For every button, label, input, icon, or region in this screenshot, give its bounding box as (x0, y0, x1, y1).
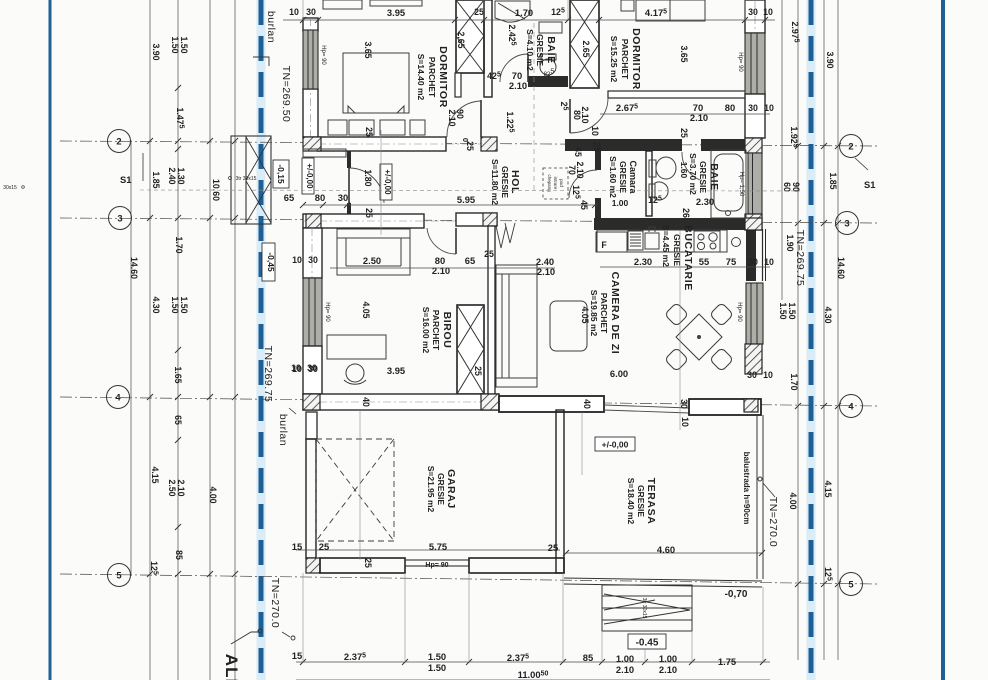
svg-text:1.50: 1.50 (428, 651, 446, 662)
svg-text:30: 30 (306, 7, 316, 17)
svg-text:4.30: 4.30 (151, 296, 161, 313)
svg-text:1.925: 1.925 (789, 126, 799, 147)
svg-text:S=18.40 m2: S=18.40 m2 (626, 478, 636, 525)
svg-text:6.00: 6.00 (610, 368, 628, 379)
svg-text:25: 25 (548, 542, 558, 553)
svg-text:1.50: 1.50 (179, 296, 189, 313)
svg-text:1.00: 1.00 (616, 653, 634, 664)
svg-text:2.10: 2.10 (176, 479, 186, 496)
svg-text:80: 80 (315, 192, 325, 203)
svg-text:3.95: 3.95 (387, 365, 405, 376)
svg-text:10: 10 (763, 370, 773, 380)
svg-text:Hp= 90: Hp= 90 (736, 302, 742, 322)
svg-text:S=1.60 m2: S=1.60 m2 (608, 156, 618, 198)
svg-text:15: 15 (292, 650, 302, 661)
svg-text:30x15: 30x15 (3, 185, 17, 191)
svg-text:1.65: 1.65 (173, 366, 183, 383)
svg-text:5.95: 5.95 (457, 194, 475, 205)
svg-text:S=21.95 m2: S=21.95 m2 (426, 466, 436, 513)
svg-text:TN=270.0: TN=270.0 (767, 497, 779, 547)
svg-text:3.65: 3.65 (363, 41, 373, 58)
svg-text:25: 25 (484, 249, 494, 259)
svg-text:40: 40 (582, 399, 592, 409)
svg-text:5: 5 (848, 579, 853, 590)
svg-text:2.65: 2.65 (581, 40, 591, 57)
svg-text:3.65: 3.65 (679, 45, 689, 62)
svg-text:4.05: 4.05 (361, 301, 371, 318)
svg-text:4.15: 4.15 (150, 466, 160, 483)
svg-text:2: 2 (848, 141, 853, 152)
svg-text:GRESIE: GRESIE (698, 161, 708, 193)
svg-text:4.30: 4.30 (823, 306, 833, 323)
svg-text:TN=269.50: TN=269.50 (280, 66, 292, 123)
svg-text:125: 125 (551, 7, 565, 17)
svg-text:-0,45: -0,45 (266, 252, 276, 272)
svg-text:2.30: 2.30 (634, 256, 652, 267)
svg-text:S=4.45 m2: S=4.45 m2 (661, 225, 671, 267)
svg-text:GRESIE: GRESIE (436, 473, 446, 505)
svg-text:25: 25 (364, 208, 374, 218)
svg-text:3.95: 3.95 (387, 7, 405, 18)
svg-text:125: 125 (823, 567, 833, 581)
svg-text:25: 25 (474, 7, 484, 17)
svg-text:Hp= 90: Hp= 90 (425, 562, 448, 569)
svg-text:1.50: 1.50 (170, 36, 180, 53)
svg-text:2.425: 2.425 (507, 24, 517, 45)
svg-text:1.70: 1.70 (174, 236, 184, 253)
svg-text:45: 45 (573, 147, 583, 157)
svg-text:S=11.80 m2: S=11.80 m2 (490, 159, 500, 205)
svg-text:10: 10 (680, 417, 690, 427)
svg-text:2.10: 2.10 (575, 161, 585, 178)
svg-text:40: 40 (361, 397, 371, 407)
svg-text:Camara: Camara (628, 160, 638, 194)
svg-text:-0,15: -0,15 (276, 164, 286, 184)
svg-text:F: F (601, 240, 607, 250)
svg-text:3: 3 (844, 218, 849, 229)
svg-text:GRESIE: GRESIE (618, 161, 628, 193)
svg-text:1.85: 1.85 (151, 171, 161, 188)
svg-text:balustrada h=90cm: balustrada h=90cm (742, 452, 751, 525)
svg-text:1.50: 1.50 (179, 36, 189, 53)
svg-text:2.10: 2.10 (580, 106, 590, 123)
svg-text:14.60: 14.60 (129, 257, 139, 279)
svg-text:1.475: 1.475 (175, 107, 185, 128)
svg-text:1.85: 1.85 (828, 172, 838, 189)
svg-text:2.65: 2.65 (456, 31, 466, 48)
svg-text:ALI: ALI (222, 654, 241, 680)
svg-text:DORMITOR: DORMITOR (630, 28, 642, 90)
svg-text:1.75: 1.75 (718, 656, 736, 667)
svg-text:-0,70: -0,70 (725, 589, 748, 600)
svg-text:3tr 30x15: 3tr 30x15 (236, 176, 257, 182)
svg-text:1.00: 1.00 (659, 653, 677, 664)
svg-text:30: 30 (748, 257, 758, 267)
svg-text:burlan: burlan (265, 11, 277, 43)
svg-text:425: 425 (487, 71, 501, 81)
svg-text:1.50: 1.50 (787, 302, 797, 319)
svg-text:25: 25 (319, 541, 329, 552)
svg-text:80: 80 (725, 102, 735, 113)
svg-text:4.15: 4.15 (823, 480, 833, 497)
svg-text:26: 26 (681, 208, 691, 218)
svg-text:2.30: 2.30 (696, 196, 714, 207)
svg-text:125: 125 (648, 195, 662, 205)
svg-text:S=15.25 m2: S=15.25 m2 (609, 36, 619, 83)
svg-text:1.50: 1.50 (778, 302, 788, 319)
svg-text:10: 10 (289, 7, 299, 17)
svg-text:2.10: 2.10 (616, 664, 634, 675)
svg-text:2.375: 2.375 (344, 651, 366, 662)
svg-text:3.90: 3.90 (151, 43, 161, 60)
svg-text:65: 65 (465, 255, 475, 266)
svg-text:+/-0,00: +/-0,00 (602, 440, 629, 450)
svg-text:2.975: 2.975 (790, 21, 800, 42)
svg-text:25: 25 (473, 366, 483, 376)
svg-text:30: 30 (338, 192, 348, 203)
svg-text:65: 65 (284, 192, 294, 203)
svg-text:2: 2 (116, 136, 121, 147)
svg-text:GRESIE: GRESIE (535, 34, 545, 66)
svg-text:30: 30 (679, 399, 689, 409)
svg-text:25: 25 (679, 128, 689, 138)
svg-text:4.00: 4.00 (208, 486, 218, 503)
svg-text:30: 30 (748, 103, 758, 113)
svg-text:14.60: 14.60 (836, 257, 846, 279)
svg-text:1.30: 1.30 (176, 167, 186, 184)
svg-text:10: 10 (764, 103, 774, 113)
svg-text:1.90: 1.90 (785, 234, 795, 251)
svg-text:-0.45: -0.45 (636, 638, 659, 649)
svg-text:BAIE: BAIE (545, 36, 557, 64)
svg-text:2.675: 2.675 (616, 102, 638, 113)
svg-text:Hp= 90: Hp= 90 (320, 45, 326, 65)
svg-text:60: 60 (782, 182, 792, 192)
svg-text:10: 10 (764, 257, 774, 267)
svg-text:1.50: 1.50 (170, 296, 180, 313)
svg-text:S1: S1 (120, 174, 131, 185)
svg-text:4.00: 4.00 (788, 492, 798, 509)
svg-text:DORMITOR: DORMITOR (437, 46, 449, 108)
svg-text:3tr 30x15: 3tr 30x15 (641, 598, 647, 619)
svg-text:4.60: 4.60 (657, 544, 675, 555)
svg-text:25: 25 (364, 127, 374, 137)
svg-text:2.40: 2.40 (167, 167, 177, 184)
svg-text:PARCHET: PARCHET (599, 293, 609, 334)
svg-text:PARCHET: PARCHET (431, 310, 441, 351)
svg-text:10: 10 (763, 7, 773, 17)
svg-text:BIROU: BIROU (441, 312, 453, 349)
svg-text:CAMERA DE ZI: CAMERA DE ZI (609, 272, 621, 355)
svg-text:2.50: 2.50 (167, 479, 177, 496)
svg-text:30: 30 (307, 363, 317, 373)
svg-text:2.10: 2.10 (659, 664, 677, 675)
svg-text:GRESIE: GRESIE (636, 485, 646, 517)
svg-text:1.70: 1.70 (789, 373, 799, 390)
svg-text:3.90: 3.90 (825, 51, 835, 68)
svg-text:10: 10 (292, 255, 302, 265)
svg-text:11.0050: 11.0050 (518, 669, 549, 680)
svg-text:BUCATARIE: BUCATARIE (682, 225, 694, 291)
svg-text:10: 10 (590, 126, 600, 136)
svg-text:25: 25 (363, 558, 373, 568)
svg-text:1.225: 1.225 (505, 111, 515, 132)
svg-text:85: 85 (583, 652, 593, 663)
svg-text:BAIE: BAIE (708, 163, 720, 191)
svg-text:75: 75 (726, 256, 736, 267)
svg-text:2.10: 2.10 (447, 109, 457, 126)
svg-text:pod: pod (559, 179, 564, 187)
svg-text:2.50: 2.50 (363, 255, 381, 266)
svg-text:4: 4 (115, 392, 121, 403)
svg-text:1.80: 1.80 (363, 169, 373, 186)
svg-text:+/-0,00: +/-0,00 (305, 163, 314, 189)
svg-text:1.60: 1.60 (679, 162, 689, 179)
svg-text:PARCHET: PARCHET (620, 39, 630, 80)
svg-text:30: 30 (308, 255, 318, 265)
svg-text:S=4.10 m2: S=4.10 m2 (525, 29, 535, 71)
svg-text:125: 125 (571, 185, 581, 199)
svg-text:2.10: 2.10 (509, 80, 527, 91)
svg-text:15: 15 (292, 541, 302, 552)
svg-text:1.50: 1.50 (428, 662, 446, 673)
svg-text:25: 25 (465, 141, 475, 151)
svg-text:Hp= 90: Hp= 90 (324, 302, 330, 322)
svg-text:GRESIE: GRESIE (500, 166, 510, 198)
svg-text:S1: S1 (864, 179, 875, 190)
svg-text:25: 25 (559, 102, 569, 111)
svg-text:4: 4 (848, 401, 854, 412)
svg-text:TN=269.75: TN=269.75 (262, 346, 274, 403)
svg-text:5: 5 (116, 570, 121, 581)
svg-text:TN=270.0: TN=270.0 (269, 578, 281, 628)
svg-text:1.70: 1.70 (515, 7, 533, 18)
svg-text:3: 3 (117, 213, 122, 224)
svg-text:burlan: burlan (277, 414, 289, 446)
svg-text:10: 10 (291, 363, 301, 373)
svg-text:65: 65 (173, 415, 183, 425)
svg-text:4.175: 4.175 (645, 7, 667, 18)
svg-text:4.05: 4.05 (580, 306, 590, 323)
svg-text:TN=269.75: TN=269.75 (794, 230, 806, 287)
svg-text:S=14.40 m2: S=14.40 m2 (416, 54, 426, 101)
svg-text:GRESIE: GRESIE (672, 234, 682, 266)
svg-text:intrare: intrare (553, 177, 558, 190)
svg-text:5.75: 5.75 (429, 541, 447, 552)
svg-text:PARCHET: PARCHET (427, 57, 437, 98)
svg-text:2.375: 2.375 (507, 652, 529, 663)
svg-text:25: 25 (592, 142, 602, 152)
svg-text:1.00: 1.00 (612, 198, 629, 208)
svg-text:chepang: chepang (547, 174, 552, 192)
svg-text:S=16.00 m2: S=16.00 m2 (421, 307, 431, 354)
svg-text:90: 90 (791, 182, 801, 192)
svg-text:+/-0,00: +/-0,00 (383, 169, 392, 195)
svg-text:Hp= 90: Hp= 90 (737, 52, 743, 72)
svg-text:2.10: 2.10 (432, 265, 450, 276)
svg-text:0: 0 (461, 138, 470, 142)
svg-text:30: 30 (747, 370, 757, 380)
svg-text:55: 55 (699, 256, 709, 267)
svg-text:30: 30 (748, 7, 758, 17)
svg-text:85: 85 (174, 550, 184, 560)
